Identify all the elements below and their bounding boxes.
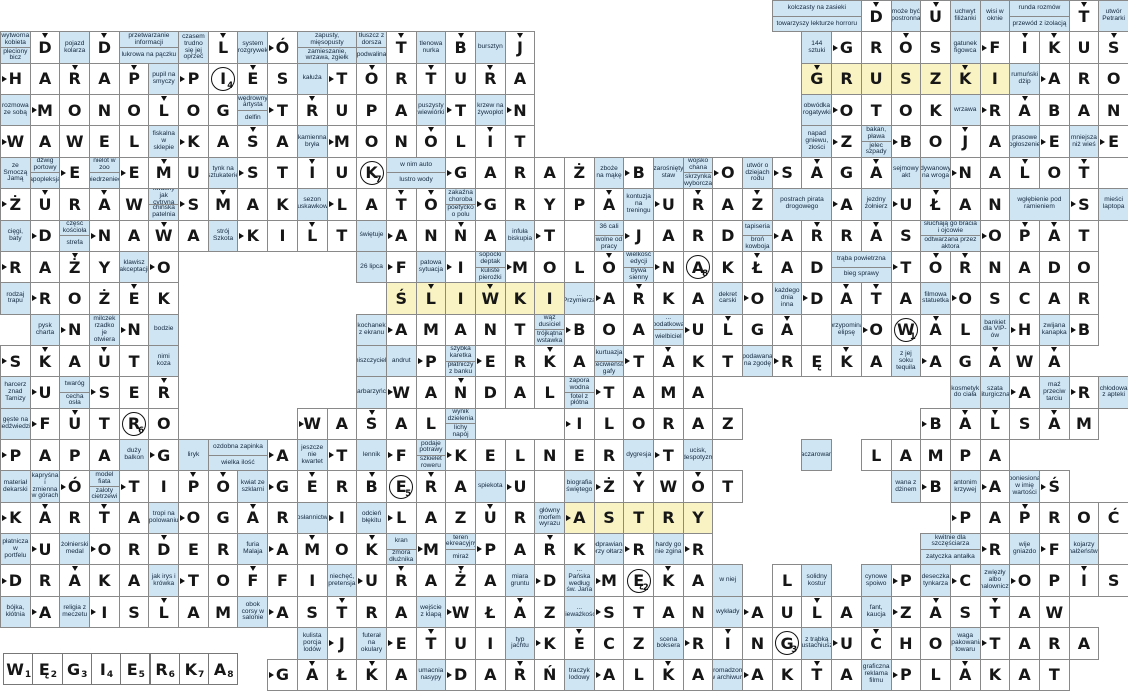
letter-cell[interactable]: I — [297, 157, 328, 189]
letter-cell[interactable]: W — [653, 470, 684, 502]
letter-cell[interactable]: A — [623, 314, 654, 346]
letter-cell[interactable]: R — [772, 345, 803, 377]
letter-cell[interactable]: A — [30, 596, 61, 628]
letter-cell[interactable]: D — [475, 376, 506, 408]
letter-cell[interactable]: A — [119, 220, 150, 252]
letter-cell[interactable]: B — [445, 31, 476, 63]
letter-cell[interactable]: R — [505, 502, 536, 534]
letter-cell[interactable]: I — [475, 125, 506, 157]
letter-cell[interactable]: U — [30, 188, 61, 220]
letter-cell[interactable]: Ł — [920, 188, 951, 220]
letter-cell[interactable]: L — [623, 659, 654, 691]
solution-cell[interactable]: E5 — [120, 653, 150, 685]
letter-cell[interactable]: A — [653, 345, 684, 377]
letter-cell[interactable]: W — [1009, 345, 1040, 377]
letter-cell[interactable]: K — [683, 345, 714, 377]
letter-cell[interactable]: A — [59, 345, 90, 377]
yellow-letter-cell[interactable]: L — [416, 282, 447, 314]
letter-cell[interactable]: U — [831, 627, 862, 659]
letter-cell[interactable]: O — [178, 94, 209, 126]
solution-cell[interactable]: A8 — [208, 653, 238, 685]
letter-cell[interactable]: O — [1098, 63, 1128, 95]
circled-letter-cell[interactable]: K7 — [356, 157, 387, 189]
letter-cell[interactable]: S — [1098, 31, 1128, 63]
letter-cell[interactable]: I — [712, 627, 743, 659]
letter-cell[interactable]: F — [237, 564, 268, 596]
letter-cell[interactable]: O — [920, 251, 951, 283]
letter-cell[interactable]: A — [30, 63, 61, 95]
letter-cell[interactable]: T — [1039, 659, 1070, 691]
letter-cell[interactable]: A — [920, 596, 951, 628]
yellow-letter-cell[interactable]: S — [891, 63, 922, 95]
letter-cell[interactable]: L — [594, 408, 625, 440]
letter-cell[interactable]: T — [980, 596, 1011, 628]
letter-cell[interactable]: R — [801, 220, 832, 252]
letter-cell[interactable]: L — [950, 314, 981, 346]
letter-cell[interactable]: K — [653, 282, 684, 314]
letter-cell[interactable]: A — [683, 659, 714, 691]
letter-cell[interactable]: K — [980, 659, 1011, 691]
letter-cell[interactable]: A — [1039, 282, 1070, 314]
letter-cell[interactable]: N — [416, 220, 447, 252]
letter-cell[interactable]: I — [267, 220, 298, 252]
letter-cell[interactable]: W — [386, 376, 417, 408]
letter-cell[interactable]: G — [831, 157, 862, 189]
letter-cell[interactable]: D — [712, 220, 743, 252]
letter-cell[interactable]: O — [178, 502, 209, 534]
letter-cell[interactable]: K — [89, 564, 120, 596]
letter-cell[interactable]: G — [475, 188, 506, 220]
letter-cell[interactable]: Ł — [475, 596, 506, 628]
letter-cell[interactable]: U — [356, 564, 387, 596]
letter-cell[interactable]: T — [416, 627, 447, 659]
letter-cell[interactable]: H — [891, 627, 922, 659]
yellow-letter-cell[interactable]: T — [623, 502, 654, 534]
letter-cell[interactable]: K — [0, 502, 31, 534]
letter-cell[interactable]: A — [505, 63, 536, 95]
letter-cell[interactable]: A — [1039, 63, 1070, 95]
letter-cell[interactable]: R — [297, 94, 328, 126]
letter-cell[interactable]: A — [1009, 627, 1040, 659]
letter-cell[interactable]: B — [920, 470, 951, 502]
yellow-letter-cell[interactable]: U — [861, 63, 892, 95]
letter-cell[interactable]: A — [831, 188, 862, 220]
letter-cell[interactable]: A — [89, 63, 120, 95]
letter-cell[interactable]: R — [30, 282, 61, 314]
letter-cell[interactable]: R — [59, 188, 90, 220]
letter-cell[interactable]: Y — [534, 188, 565, 220]
letter-cell[interactable]: T — [1069, 0, 1100, 32]
letter-cell[interactable]: R — [594, 439, 625, 471]
solution-cell[interactable]: R6 — [150, 653, 180, 685]
letter-cell[interactable]: Z — [831, 125, 862, 157]
letter-cell[interactable]: K — [772, 659, 803, 691]
letter-cell[interactable]: S — [1098, 564, 1128, 596]
letter-cell[interactable]: A — [416, 376, 447, 408]
letter-cell[interactable]: L — [148, 94, 179, 126]
letter-cell[interactable]: E — [178, 533, 209, 565]
letter-cell[interactable]: O — [534, 251, 565, 283]
letter-cell[interactable]: O — [148, 408, 179, 440]
yellow-letter-cell[interactable]: I — [980, 63, 1011, 95]
letter-cell[interactable]: Z — [534, 596, 565, 628]
letter-cell[interactable]: D — [445, 659, 476, 691]
letter-cell[interactable]: U — [59, 408, 90, 440]
letter-cell[interactable]: Ę — [801, 345, 832, 377]
letter-cell[interactable]: S — [891, 220, 922, 252]
letter-cell[interactable]: O — [416, 188, 447, 220]
letter-cell[interactable]: R — [356, 596, 387, 628]
letter-cell[interactable]: C — [861, 627, 892, 659]
letter-cell[interactable]: B — [920, 408, 951, 440]
letter-cell[interactable]: D — [801, 282, 832, 314]
letter-cell[interactable]: A — [712, 188, 743, 220]
letter-cell[interactable]: T — [505, 314, 536, 346]
letter-cell[interactable]: J — [505, 31, 536, 63]
letter-cell[interactable]: A — [831, 282, 862, 314]
letter-cell[interactable]: D — [148, 533, 179, 565]
yellow-letter-cell[interactable]: A — [564, 502, 595, 534]
letter-cell[interactable]: G — [267, 659, 298, 691]
yellow-letter-cell[interactable]: I — [534, 282, 565, 314]
letter-cell[interactable]: A — [237, 502, 268, 534]
letter-cell[interactable]: F — [1039, 533, 1070, 565]
letter-cell[interactable]: O — [712, 157, 743, 189]
letter-cell[interactable]: K — [237, 220, 268, 252]
letter-cell[interactable]: O — [891, 31, 922, 63]
letter-cell[interactable]: P — [416, 345, 447, 377]
letter-cell[interactable]: A — [475, 157, 506, 189]
letter-cell[interactable]: O — [950, 282, 981, 314]
letter-cell[interactable]: N — [742, 627, 773, 659]
letter-cell[interactable]: Ć — [1098, 502, 1128, 534]
letter-cell[interactable]: A — [891, 282, 922, 314]
letter-cell[interactable]: L — [386, 502, 417, 534]
letter-cell[interactable]: H — [1009, 314, 1040, 346]
letter-cell[interactable]: N — [445, 220, 476, 252]
letter-cell[interactable]: U — [30, 376, 61, 408]
letter-cell[interactable]: L — [1009, 157, 1040, 189]
letter-cell[interactable]: Ż — [445, 564, 476, 596]
letter-cell[interactable]: A — [208, 125, 239, 157]
letter-cell[interactable]: T — [534, 220, 565, 252]
letter-cell[interactable]: P — [891, 564, 922, 596]
letter-cell[interactable]: T — [712, 345, 743, 377]
letter-cell[interactable]: A — [920, 345, 951, 377]
yellow-letter-cell[interactable]: S — [594, 502, 625, 534]
letter-cell[interactable]: P — [1009, 220, 1040, 252]
yellow-letter-cell[interactable]: R — [831, 63, 862, 95]
letter-cell[interactable]: S — [594, 596, 625, 628]
letter-cell[interactable]: E — [475, 345, 506, 377]
letter-cell[interactable]: R — [208, 533, 239, 565]
letter-cell[interactable]: A — [772, 314, 803, 346]
letter-cell[interactable]: A — [445, 314, 476, 346]
letter-cell[interactable]: M — [653, 376, 684, 408]
letter-cell[interactable]: N — [89, 220, 120, 252]
letter-cell[interactable]: N — [119, 314, 150, 346]
letter-cell[interactable]: O — [1009, 564, 1040, 596]
letter-cell[interactable]: Ż — [59, 251, 90, 283]
letter-cell[interactable]: R — [683, 220, 714, 252]
letter-cell[interactable]: A — [416, 564, 447, 596]
letter-cell[interactable]: O — [891, 94, 922, 126]
letter-cell[interactable]: K — [356, 533, 387, 565]
letter-cell[interactable]: A — [772, 220, 803, 252]
letter-cell[interactable]: R — [267, 502, 298, 534]
letter-cell[interactable]: N — [475, 314, 506, 346]
letter-cell[interactable]: A — [831, 659, 862, 691]
letter-cell[interactable]: T — [89, 408, 120, 440]
letter-cell[interactable]: Ł — [742, 251, 773, 283]
letter-cell[interactable]: A — [386, 408, 417, 440]
letter-cell[interactable]: Z — [891, 596, 922, 628]
letter-cell[interactable]: S — [89, 376, 120, 408]
letter-cell[interactable]: C — [1009, 282, 1040, 314]
solution-cell[interactable]: G3 — [62, 653, 92, 685]
letter-cell[interactable]: U — [891, 188, 922, 220]
letter-cell[interactable]: W — [119, 188, 150, 220]
letter-cell[interactable]: O — [208, 564, 239, 596]
letter-cell[interactable]: P — [950, 502, 981, 534]
letter-cell[interactable]: G — [267, 470, 298, 502]
letter-cell[interactable]: G — [950, 345, 981, 377]
letter-cell[interactable]: D — [30, 31, 61, 63]
letter-cell[interactable]: N — [89, 94, 120, 126]
letter-cell[interactable]: A — [119, 564, 150, 596]
letter-cell[interactable]: Ś — [1039, 470, 1070, 502]
letter-cell[interactable]: A — [89, 188, 120, 220]
letter-cell[interactable]: R — [505, 157, 536, 189]
letter-cell[interactable]: D — [30, 220, 61, 252]
letter-cell[interactable]: M — [327, 125, 358, 157]
letter-cell[interactable]: O — [356, 63, 387, 95]
letter-cell[interactable]: T — [891, 251, 922, 283]
letter-cell[interactable]: K — [712, 251, 743, 283]
letter-cell[interactable]: E — [475, 439, 506, 471]
letter-cell[interactable]: P — [564, 188, 595, 220]
letter-cell[interactable]: A — [386, 314, 417, 346]
letter-cell[interactable]: S — [178, 188, 209, 220]
letter-cell[interactable]: L — [861, 439, 892, 471]
letter-cell[interactable]: T — [327, 596, 358, 628]
letter-cell[interactable]: L — [801, 596, 832, 628]
letter-cell[interactable]: E — [1039, 125, 1070, 157]
letter-cell[interactable]: A — [980, 345, 1011, 377]
letter-cell[interactable]: A — [1009, 596, 1040, 628]
letter-cell[interactable]: G — [742, 314, 773, 346]
letter-cell[interactable]: L — [297, 220, 328, 252]
letter-cell[interactable]: M — [297, 533, 328, 565]
letter-cell[interactable]: A — [980, 439, 1011, 471]
letter-cell[interactable]: K — [356, 659, 387, 691]
letter-cell[interactable]: S — [772, 157, 803, 189]
letter-cell[interactable]: A — [178, 220, 209, 252]
letter-cell[interactable]: R — [683, 188, 714, 220]
letter-cell[interactable]: E — [237, 63, 268, 95]
letter-cell[interactable]: M — [1069, 408, 1100, 440]
letter-cell[interactable]: P — [119, 63, 150, 95]
letter-cell[interactable]: D — [534, 564, 565, 596]
letter-cell[interactable]: A — [30, 125, 61, 157]
letter-cell[interactable]: O — [59, 282, 90, 314]
letter-cell[interactable]: R — [980, 94, 1011, 126]
letter-cell[interactable]: O — [1069, 502, 1100, 534]
letter-cell[interactable]: R — [1039, 502, 1070, 534]
letter-cell[interactable]: S — [950, 596, 981, 628]
yellow-letter-cell[interactable]: R — [653, 502, 684, 534]
letter-cell[interactable]: R — [653, 408, 684, 440]
letter-cell[interactable]: A — [178, 596, 209, 628]
letter-cell[interactable]: R — [119, 533, 150, 565]
letter-cell[interactable]: T — [980, 627, 1011, 659]
letter-cell[interactable]: N — [980, 188, 1011, 220]
letter-cell[interactable]: A — [505, 376, 536, 408]
letter-cell[interactable]: T — [89, 502, 120, 534]
letter-cell[interactable]: A — [1009, 94, 1040, 126]
letter-cell[interactable]: W — [59, 125, 90, 157]
letter-cell[interactable]: A — [861, 157, 892, 189]
letter-cell[interactable]: L — [534, 376, 565, 408]
letter-cell[interactable]: J — [950, 125, 981, 157]
circled-letter-cell[interactable]: A8 — [683, 251, 714, 283]
circled-letter-cell[interactable]: W1 — [891, 314, 922, 346]
letter-cell[interactable]: F — [980, 31, 1011, 63]
letter-cell[interactable]: W — [1039, 596, 1070, 628]
letter-cell[interactable]: A — [683, 408, 714, 440]
letter-cell[interactable]: B — [564, 314, 595, 346]
letter-cell[interactable]: A — [505, 533, 536, 565]
letter-cell[interactable]: N — [445, 376, 476, 408]
letter-cell[interactable]: A — [801, 157, 832, 189]
letter-cell[interactable]: U — [327, 94, 358, 126]
letter-cell[interactable]: P — [950, 439, 981, 471]
letter-cell[interactable]: T — [594, 376, 625, 408]
letter-cell[interactable]: Ż — [564, 157, 595, 189]
solution-cell[interactable]: Ę2 — [32, 653, 62, 685]
letter-cell[interactable]: K — [148, 282, 179, 314]
letter-cell[interactable]: T — [623, 345, 654, 377]
letter-cell[interactable]: T — [267, 157, 298, 189]
letter-cell[interactable]: K — [445, 439, 476, 471]
letter-cell[interactable]: R — [980, 533, 1011, 565]
letter-cell[interactable]: A — [1069, 94, 1100, 126]
letter-cell[interactable]: O — [119, 94, 150, 126]
letter-cell[interactable]: K — [653, 659, 684, 691]
letter-cell[interactable]: R — [148, 376, 179, 408]
letter-cell[interactable]: R — [475, 63, 506, 95]
letter-cell[interactable]: U — [920, 0, 951, 32]
letter-cell[interactable]: R — [505, 188, 536, 220]
letter-cell[interactable]: U — [653, 188, 684, 220]
letter-cell[interactable]: D — [0, 564, 31, 596]
letter-cell[interactable]: I — [297, 564, 328, 596]
letter-cell[interactable]: M — [416, 533, 447, 565]
yellow-letter-cell[interactable]: I — [445, 282, 476, 314]
letter-cell[interactable]: A — [683, 564, 714, 596]
letter-cell[interactable]: B — [1039, 94, 1070, 126]
letter-cell[interactable]: G — [148, 439, 179, 471]
letter-cell[interactable]: K — [267, 188, 298, 220]
letter-cell[interactable]: S — [0, 345, 31, 377]
letter-cell[interactable]: S — [267, 63, 298, 95]
letter-cell[interactable]: O — [327, 533, 358, 565]
letter-cell[interactable]: Ń — [534, 659, 565, 691]
letter-cell[interactable]: O — [1039, 157, 1070, 189]
letter-cell[interactable]: T — [386, 188, 417, 220]
letter-cell[interactable]: B — [356, 470, 387, 502]
letter-cell[interactable]: R — [59, 63, 90, 95]
letter-cell[interactable]: L — [980, 408, 1011, 440]
letter-cell[interactable]: O — [208, 470, 239, 502]
letter-cell[interactable]: I — [445, 251, 476, 283]
letter-cell[interactable]: A — [1009, 251, 1040, 283]
letter-cell[interactable]: O — [742, 282, 773, 314]
letter-cell[interactable]: U — [505, 470, 536, 502]
letter-cell[interactable]: T — [386, 31, 417, 63]
letter-cell[interactable]: A — [475, 564, 506, 596]
letter-cell[interactable]: L — [712, 314, 743, 346]
letter-cell[interactable]: O — [148, 251, 179, 283]
letter-cell[interactable]: U — [475, 502, 506, 534]
letter-cell[interactable]: A — [683, 282, 714, 314]
letter-cell[interactable]: A — [980, 502, 1011, 534]
letter-cell[interactable]: O — [831, 94, 862, 126]
letter-cell[interactable]: O — [861, 314, 892, 346]
letter-cell[interactable]: T — [178, 564, 209, 596]
yellow-letter-cell[interactable]: K — [505, 282, 536, 314]
solution-cell[interactable]: K7 — [179, 653, 209, 685]
letter-cell[interactable]: J — [327, 627, 358, 659]
letter-cell[interactable]: T — [1069, 220, 1100, 252]
letter-cell[interactable]: M — [30, 94, 61, 126]
letter-cell[interactable]: S — [119, 596, 150, 628]
letter-cell[interactable]: A — [564, 345, 595, 377]
letter-cell[interactable]: F — [30, 408, 61, 440]
letter-cell[interactable]: L — [119, 125, 150, 157]
letter-cell[interactable]: A — [1039, 408, 1070, 440]
letter-cell[interactable]: N — [534, 439, 565, 471]
letter-cell[interactable]: A — [653, 220, 684, 252]
letter-cell[interactable]: N — [1098, 94, 1128, 126]
letter-cell[interactable]: A — [950, 659, 981, 691]
letter-cell[interactable]: F — [386, 251, 417, 283]
letter-cell[interactable]: N — [683, 596, 714, 628]
letter-cell[interactable]: S — [356, 408, 387, 440]
letter-cell[interactable]: S — [237, 125, 268, 157]
letter-cell[interactable]: O — [356, 125, 387, 157]
letter-cell[interactable]: A — [980, 125, 1011, 157]
letter-cell[interactable]: P — [356, 94, 387, 126]
letter-cell[interactable]: A — [1039, 345, 1070, 377]
letter-cell[interactable]: A — [237, 188, 268, 220]
letter-cell[interactable]: L — [327, 188, 358, 220]
letter-cell[interactable]: R — [861, 31, 892, 63]
letter-cell[interactable]: L — [148, 596, 179, 628]
letter-cell[interactable]: M — [148, 157, 179, 189]
letter-cell[interactable]: T — [119, 470, 150, 502]
letter-cell[interactable]: R — [683, 627, 714, 659]
letter-cell[interactable]: U — [772, 596, 803, 628]
letter-cell[interactable]: R — [1069, 63, 1100, 95]
letter-cell[interactable]: Y — [623, 470, 654, 502]
letter-cell[interactable]: A — [742, 659, 773, 691]
letter-cell[interactable]: R — [0, 251, 31, 283]
letter-cell[interactable]: K — [920, 94, 951, 126]
letter-cell[interactable]: O — [980, 220, 1011, 252]
letter-cell[interactable]: O — [416, 125, 447, 157]
letter-cell[interactable]: A — [1009, 376, 1040, 408]
